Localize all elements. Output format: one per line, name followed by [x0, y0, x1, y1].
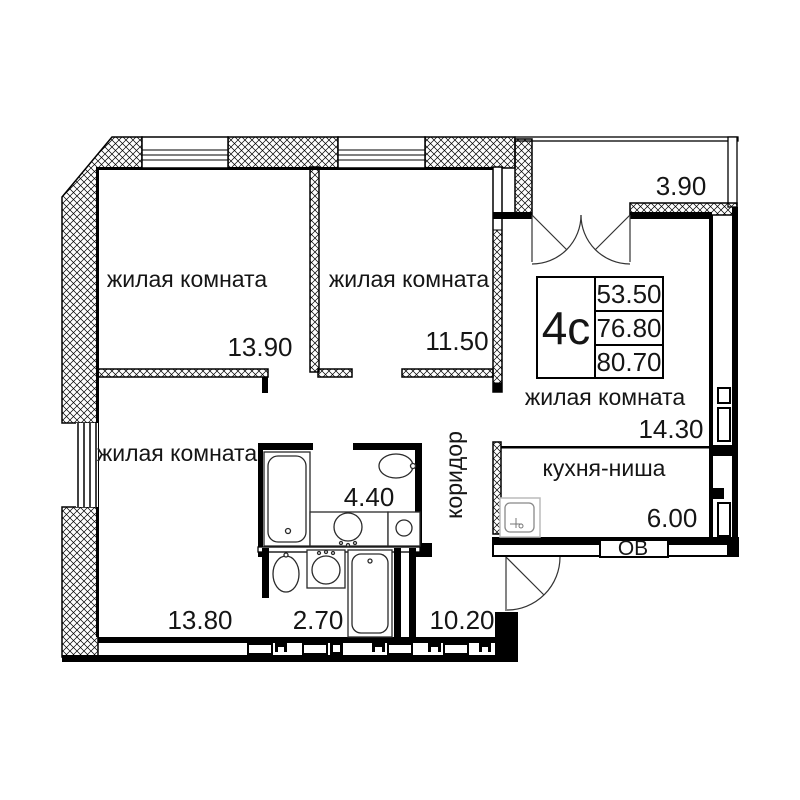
apartment-type-label: 4с: [542, 302, 591, 354]
floor-plan-page: 3.90 ОВ: [0, 0, 800, 800]
wall-cap: [493, 383, 502, 392]
room-label-living2: жилая комната: [329, 266, 489, 292]
door-leaf-right: [581, 215, 630, 264]
floor-plan-drawing: 3.90 ОВ: [0, 0, 800, 800]
room-label-living3: жилая комната: [525, 384, 685, 410]
window-right-1: [718, 408, 730, 441]
window-right-2: [718, 503, 730, 536]
vanity-counter: [310, 512, 388, 547]
apartment-info-table: 4с 53.50 76.80 80.70: [537, 277, 663, 378]
wall-left-lower: [62, 507, 98, 657]
wc-right-wall-inner: [394, 548, 401, 640]
toilet-icon-2: [273, 553, 299, 592]
bath-top-wall-right: [353, 443, 420, 450]
wall-pier: [712, 488, 724, 499]
shower-tub-icon: [348, 550, 392, 637]
right-wall-windows: [712, 388, 732, 536]
balcony: 3.90: [515, 137, 738, 215]
sink-icon: [307, 550, 345, 588]
door-jamb: [262, 377, 268, 393]
window-left: [76, 423, 98, 507]
wall-top-mid: [228, 137, 338, 168]
wc-left-wall: [262, 548, 269, 598]
window-top-1: [142, 137, 228, 168]
area-living-total: 53.50: [596, 279, 661, 309]
bathtub-icon: [264, 452, 310, 546]
washer-icon: [388, 512, 420, 546]
entrance-door: [506, 557, 560, 611]
door-leaf-left: [532, 215, 581, 264]
toilet-icon: [379, 454, 416, 478]
washbasin-icon: [334, 513, 362, 541]
kitchen-divider-line: [501, 446, 709, 449]
room-area-bathroom: 4.40: [344, 482, 395, 512]
room-area-living1: 13.90: [227, 332, 292, 362]
area-mid: 76.80: [596, 313, 661, 343]
room-area-living4: 13.80: [167, 605, 232, 635]
wall-pier: [713, 445, 732, 456]
vent-label: ОВ: [618, 537, 648, 560]
bath-top-wall-left: [258, 443, 313, 450]
balcony-french-doors: [532, 215, 630, 264]
balcony-left-wall: [515, 139, 532, 215]
window-top-2: [338, 137, 425, 168]
room-area-corridor: 10.20: [429, 605, 494, 635]
room-label-living1: жилая комната: [107, 266, 267, 292]
wall-bottom-outer: [62, 655, 518, 662]
bathroom-fixtures: [264, 452, 420, 547]
room-area-wc: 2.70: [293, 605, 344, 635]
kitchen-fixtures: [500, 498, 540, 537]
room-area-living3: 14.30: [638, 414, 703, 444]
room-area-living2: 11.50: [425, 326, 488, 356]
balcony-area: 3.90: [656, 171, 707, 201]
area-total: 80.70: [596, 347, 661, 377]
wc-right-wall-outer: [409, 548, 416, 640]
room-label-corridor: коридор: [441, 431, 467, 519]
wall-left-inner-face: [96, 167, 99, 637]
wall-entry-stub: [495, 612, 518, 658]
room-area-kitchen: 6.00: [647, 503, 698, 533]
wall-top-right: [425, 137, 515, 168]
room-label-kitchen: кухня-ниша: [543, 455, 666, 481]
room-label-living4: жилая комната: [97, 440, 257, 466]
bath-left-wall: [258, 443, 263, 557]
balcony-right-rail: [728, 137, 737, 207]
vent-window: [718, 388, 730, 403]
balcony-top-rail: [515, 137, 738, 141]
